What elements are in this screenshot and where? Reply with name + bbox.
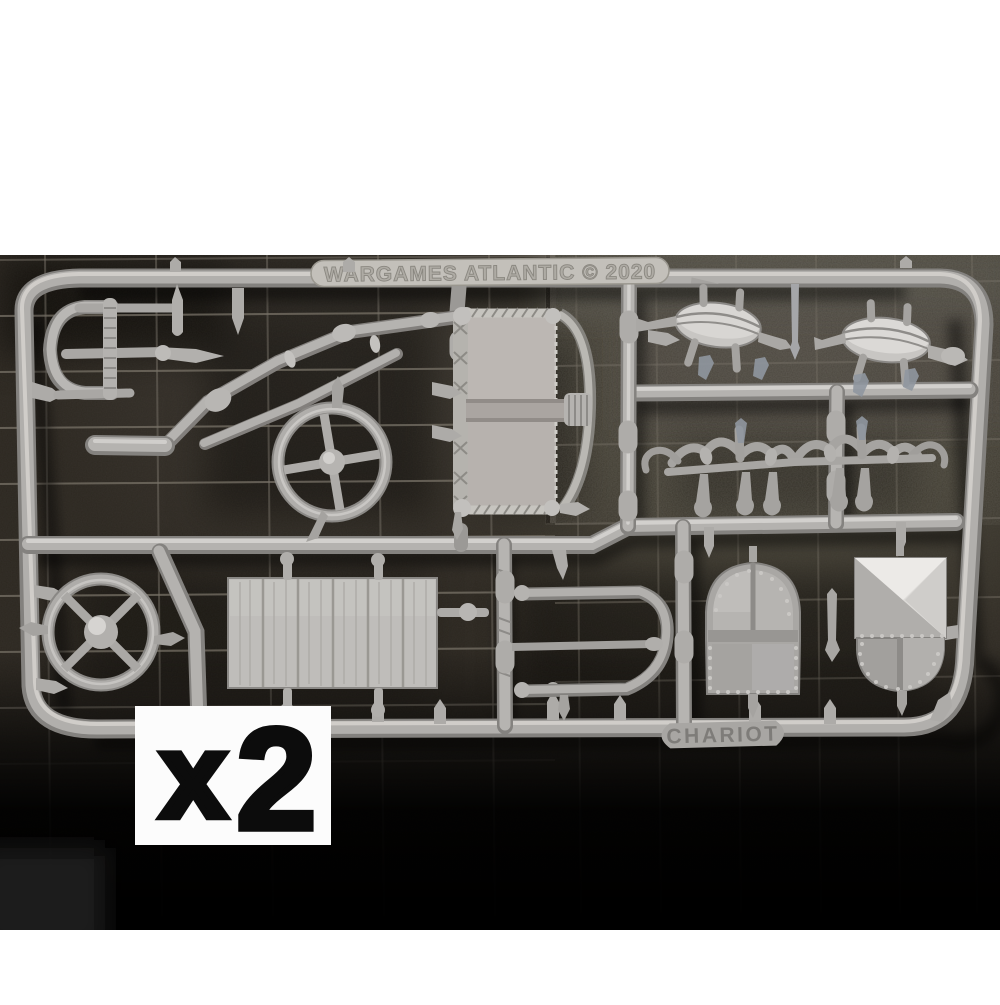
svg-text:x: x bbox=[160, 709, 227, 843]
svg-text:WARGAMES ATLANTIC © 2020: WARGAMES ATLANTIC © 2020 bbox=[324, 261, 657, 287]
svg-text:CHARIOT: CHARIOT bbox=[666, 722, 780, 748]
svg-text:2: 2 bbox=[236, 698, 317, 860]
